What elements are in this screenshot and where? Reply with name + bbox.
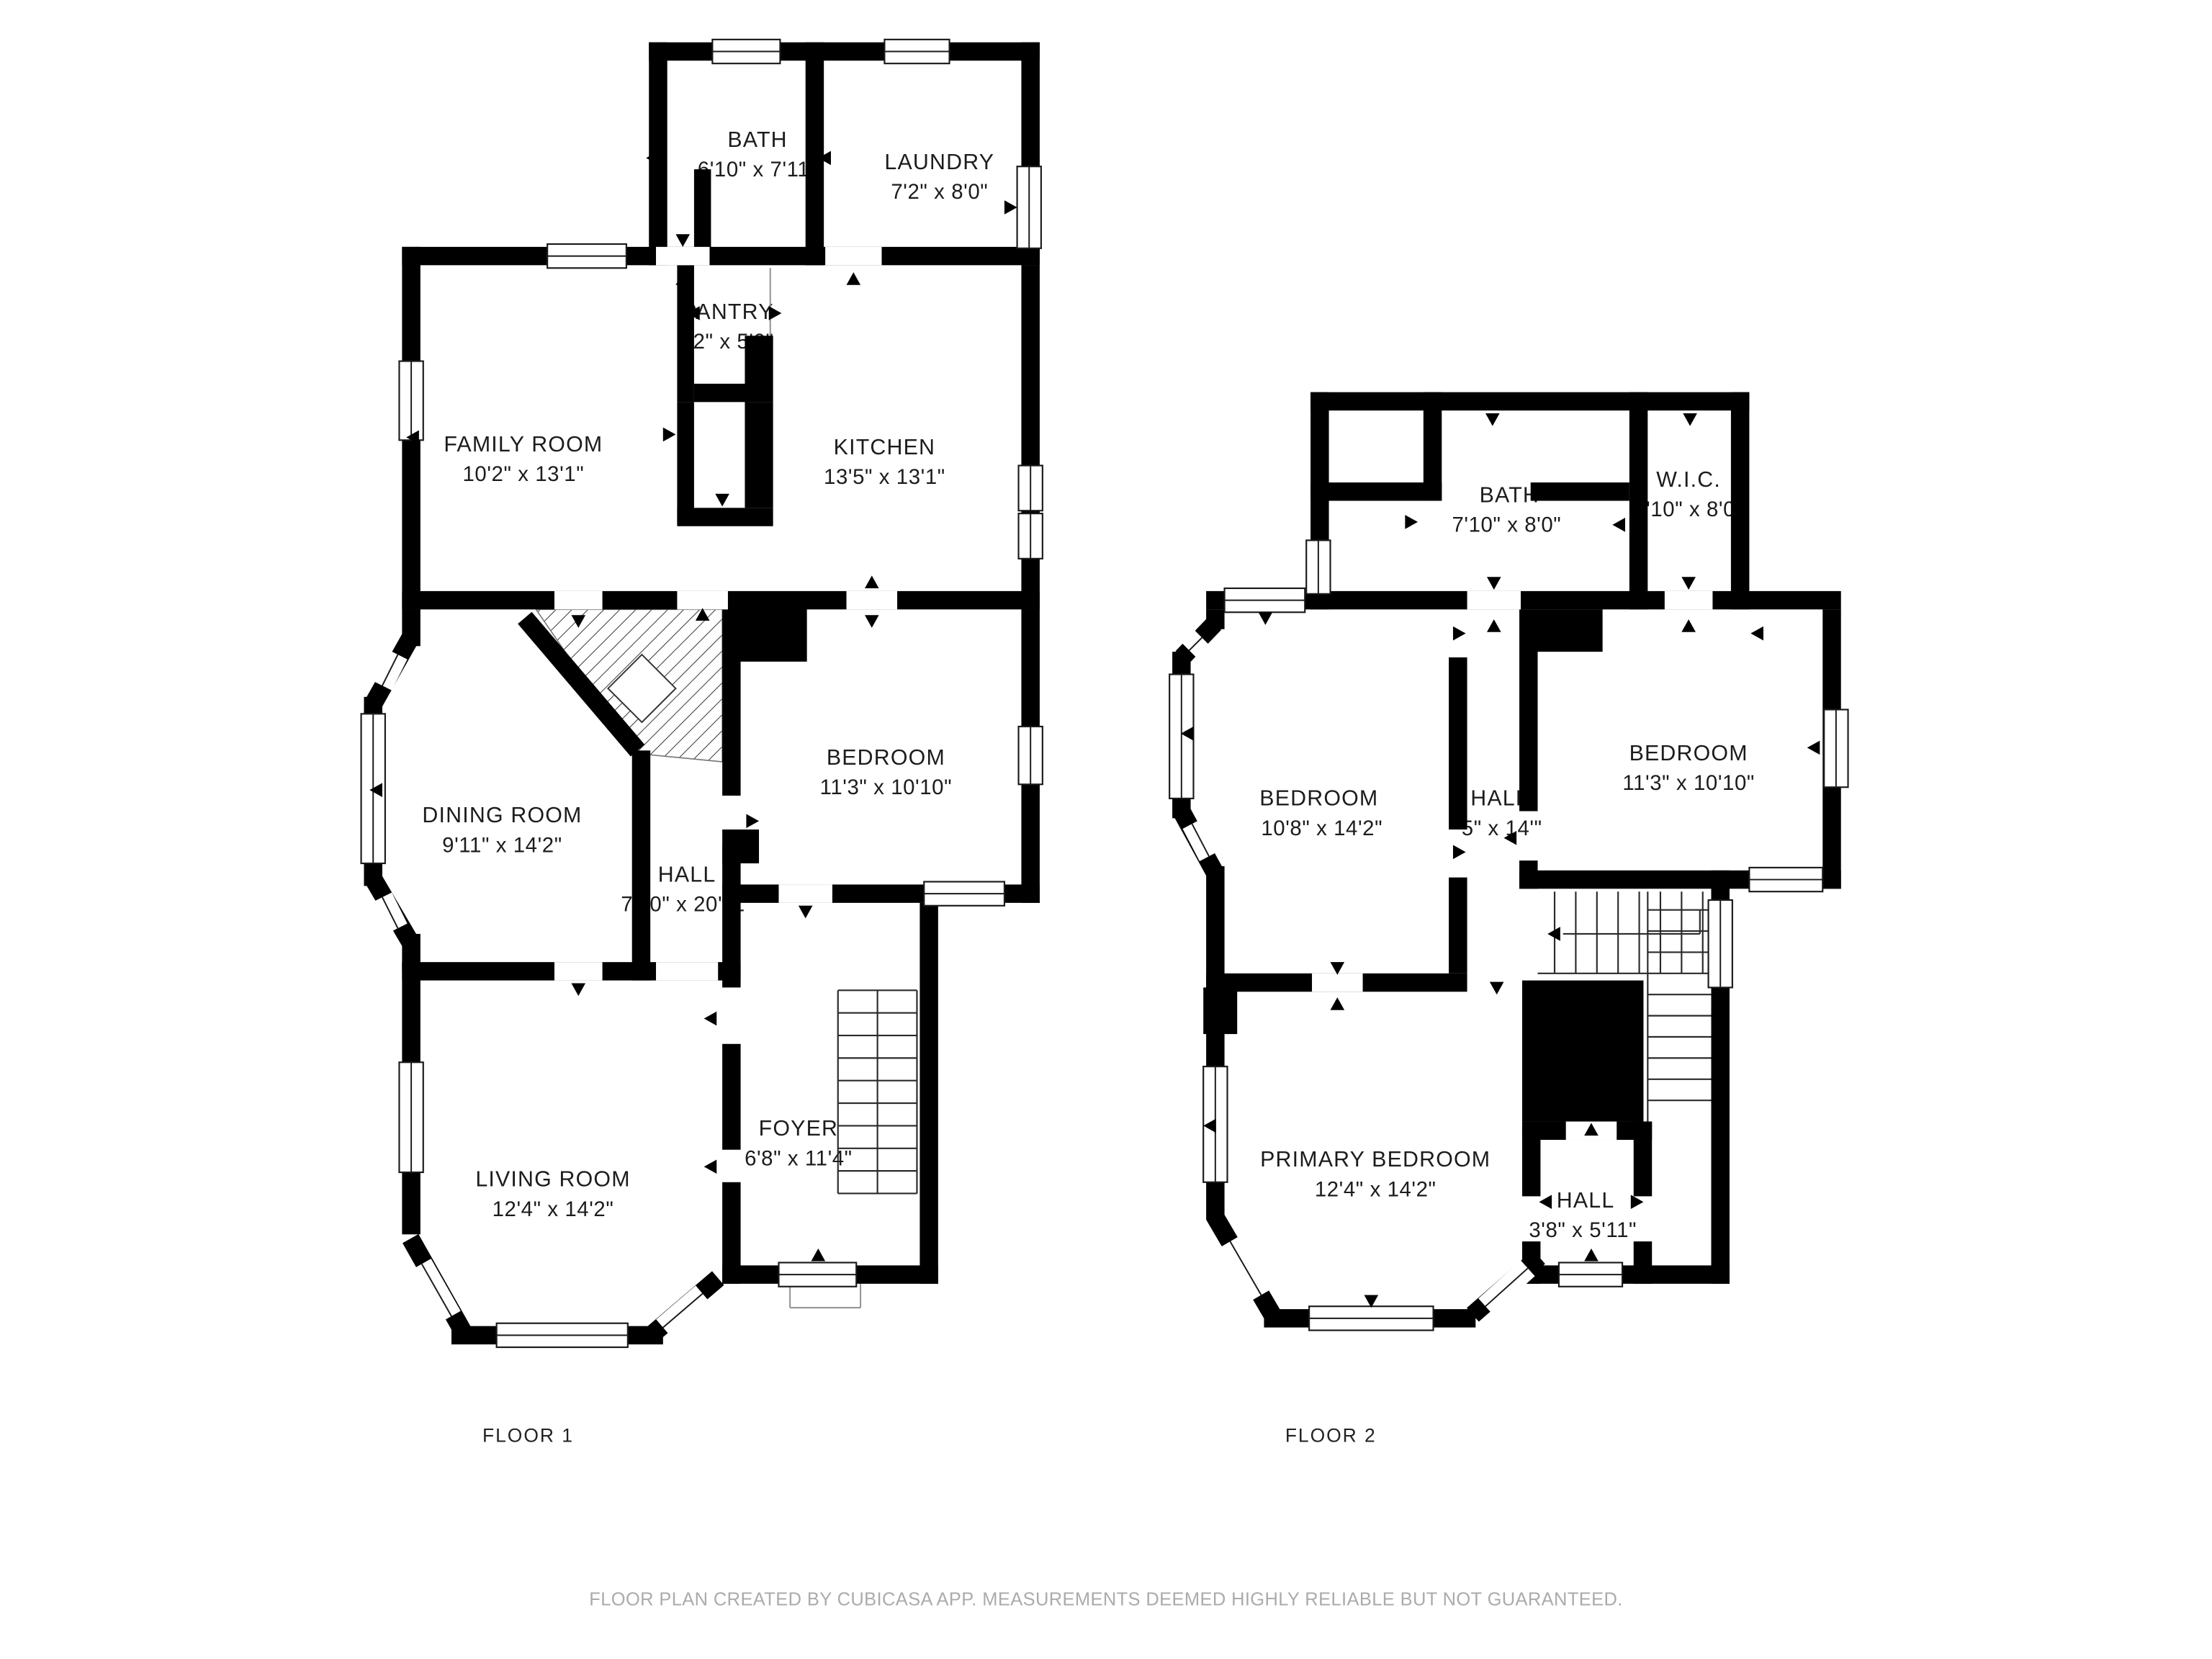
room-dims-f2-wic: 3'10" x 8'0" [1634, 498, 1743, 521]
floor-plan-page: BATH 6'10" x 7'11" LAUNDRY 7'2" x 8'0" P… [0, 0, 2212, 1659]
room-label-f1-bedroom: BEDROOM [827, 746, 945, 770]
room-dims-f1-dining: 9'11" x 14'2" [442, 833, 562, 857]
room-label-f1-family: FAMILY ROOM [444, 433, 603, 457]
room-dims-f2-hall-small: 3'8" x 5'11" [1529, 1218, 1637, 1242]
room-dims-f1-living: 12'4" x 14'2" [493, 1197, 614, 1221]
room-label-f2-primary: PRIMARY BEDROOM [1260, 1148, 1491, 1172]
room-dims-f1-foyer: 6'8" x 11'4" [745, 1146, 853, 1170]
floor1-caption: FLOOR 1 [482, 1424, 574, 1446]
floor-plan-canvas: BATH 6'10" x 7'11" LAUNDRY 7'2" x 8'0" P… [0, 0, 2212, 1659]
room-label-f1-bath: BATH [727, 128, 787, 152]
footer-disclaimer: FLOOR PLAN CREATED BY CUBICASA APP. MEAS… [589, 1590, 1622, 1610]
room-dims-f1-bedroom: 11'3" x 10'10" [820, 775, 953, 799]
floor2-labels: BATH 7'10" x 8'0" W.I.C. 3'10" x 8'0" BE… [1259, 468, 1755, 1242]
floor1-plan: BATH 6'10" x 7'11" LAUNDRY 7'2" x 8'0" P… [361, 40, 1043, 1347]
floor2-caption: FLOOR 2 [1285, 1424, 1377, 1446]
room-label-f1-hall: HALL [658, 863, 716, 886]
room-label-f1-kitchen: KITCHEN [834, 436, 935, 459]
room-label-f1-laundry: LAUNDRY [884, 150, 994, 174]
room-dims-f2-bedroom-right: 11'3" x 10'10" [1622, 771, 1755, 795]
room-label-f1-dining: DINING ROOM [422, 804, 582, 827]
room-dims-f2-hall: '5" x 14'" [1457, 817, 1542, 840]
room-label-f1-living: LIVING ROOM [475, 1168, 630, 1192]
room-label-f2-hall-small: HALL [1557, 1189, 1615, 1213]
room-dims-f1-bath: 6'10" x 7'11" [698, 158, 818, 181]
room-dims-f2-primary: 12'4" x 14'2" [1315, 1177, 1437, 1201]
room-label-f2-bedroom-right: BEDROOM [1629, 742, 1748, 765]
room-dims-f2-bedroom-left: 10'8" x 14'2" [1261, 817, 1382, 840]
room-label-f1-foyer: FOYER [759, 1117, 838, 1141]
room-dims-f1-family: 10'2" x 13'1" [462, 462, 584, 486]
room-dims-f1-laundry: 7'2" x 8'0" [891, 180, 988, 204]
room-dims-f1-kitchen: 13'5" x 13'1" [824, 465, 945, 489]
room-label-f2-bedroom-left: BEDROOM [1259, 787, 1378, 811]
room-label-f2-wic: W.I.C. [1656, 468, 1721, 492]
floor2-plan: BATH 7'10" x 8'0" W.I.C. 3'10" x 8'0" BE… [1169, 392, 1848, 1331]
room-label-f2-bath: BATH [1480, 483, 1539, 507]
room-dims-f2-bath: 7'10" x 8'0" [1452, 513, 1561, 537]
floor2-windows [1169, 540, 1848, 1330]
